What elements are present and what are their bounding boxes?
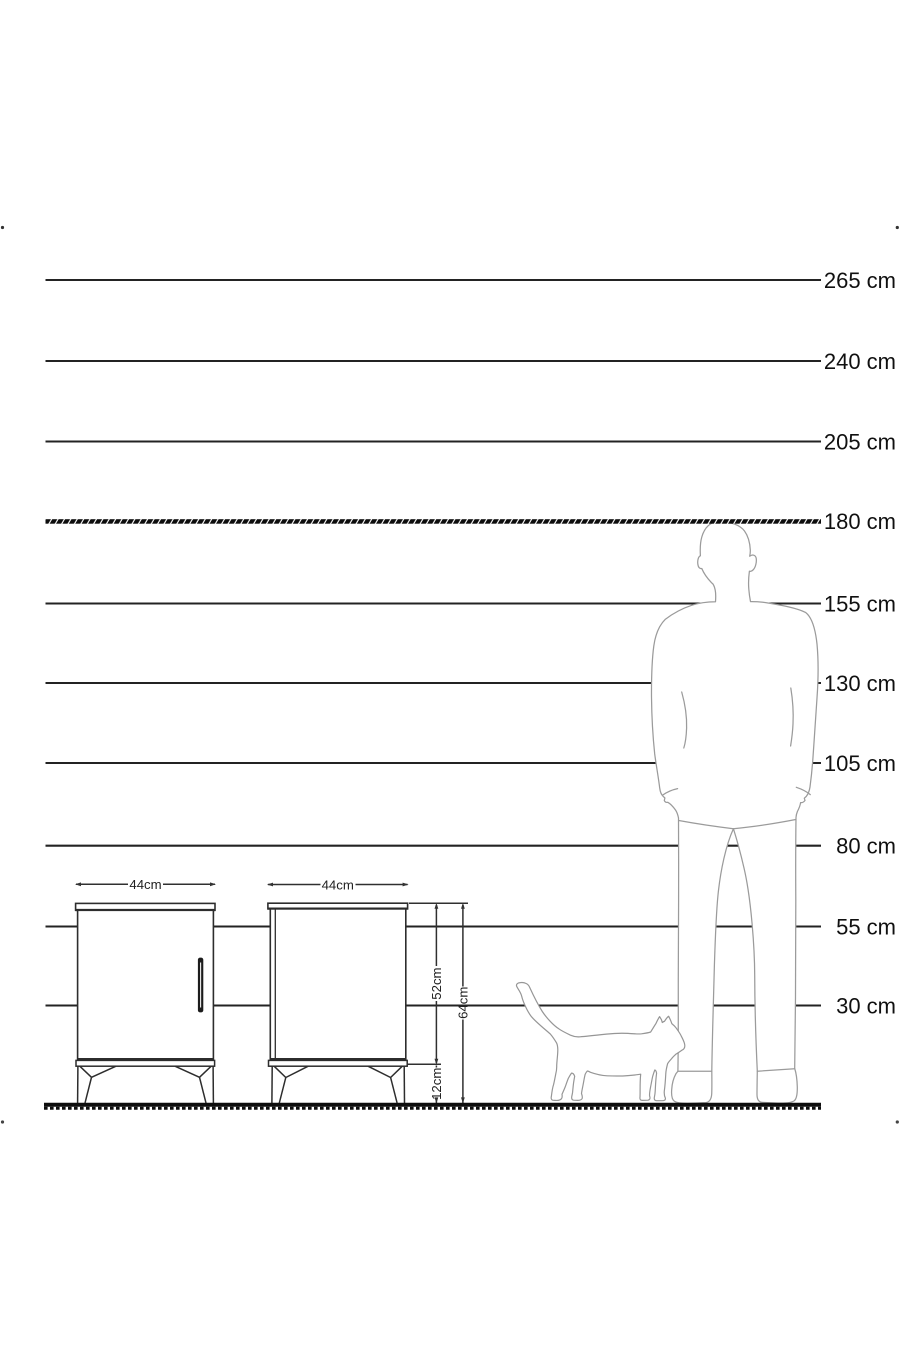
svg-text:105 cm: 105 cm bbox=[824, 751, 896, 776]
svg-text:205 cm: 205 cm bbox=[824, 429, 896, 454]
svg-text:240 cm: 240 cm bbox=[824, 349, 896, 374]
svg-text:130 cm: 130 cm bbox=[824, 671, 896, 696]
svg-text:12cm: 12cm bbox=[429, 1068, 444, 1100]
svg-text:180 cm: 180 cm bbox=[824, 509, 896, 534]
svg-text:55 cm: 55 cm bbox=[836, 914, 896, 939]
svg-text:265 cm: 265 cm bbox=[824, 268, 896, 293]
svg-text:44cm: 44cm bbox=[322, 877, 354, 892]
svg-text:80 cm: 80 cm bbox=[836, 834, 896, 859]
svg-text:44cm: 44cm bbox=[129, 877, 161, 892]
svg-text:30 cm: 30 cm bbox=[836, 993, 896, 1018]
svg-text:52cm: 52cm bbox=[429, 967, 444, 999]
svg-text:64cm: 64cm bbox=[456, 987, 471, 1019]
svg-text:155 cm: 155 cm bbox=[824, 591, 896, 616]
